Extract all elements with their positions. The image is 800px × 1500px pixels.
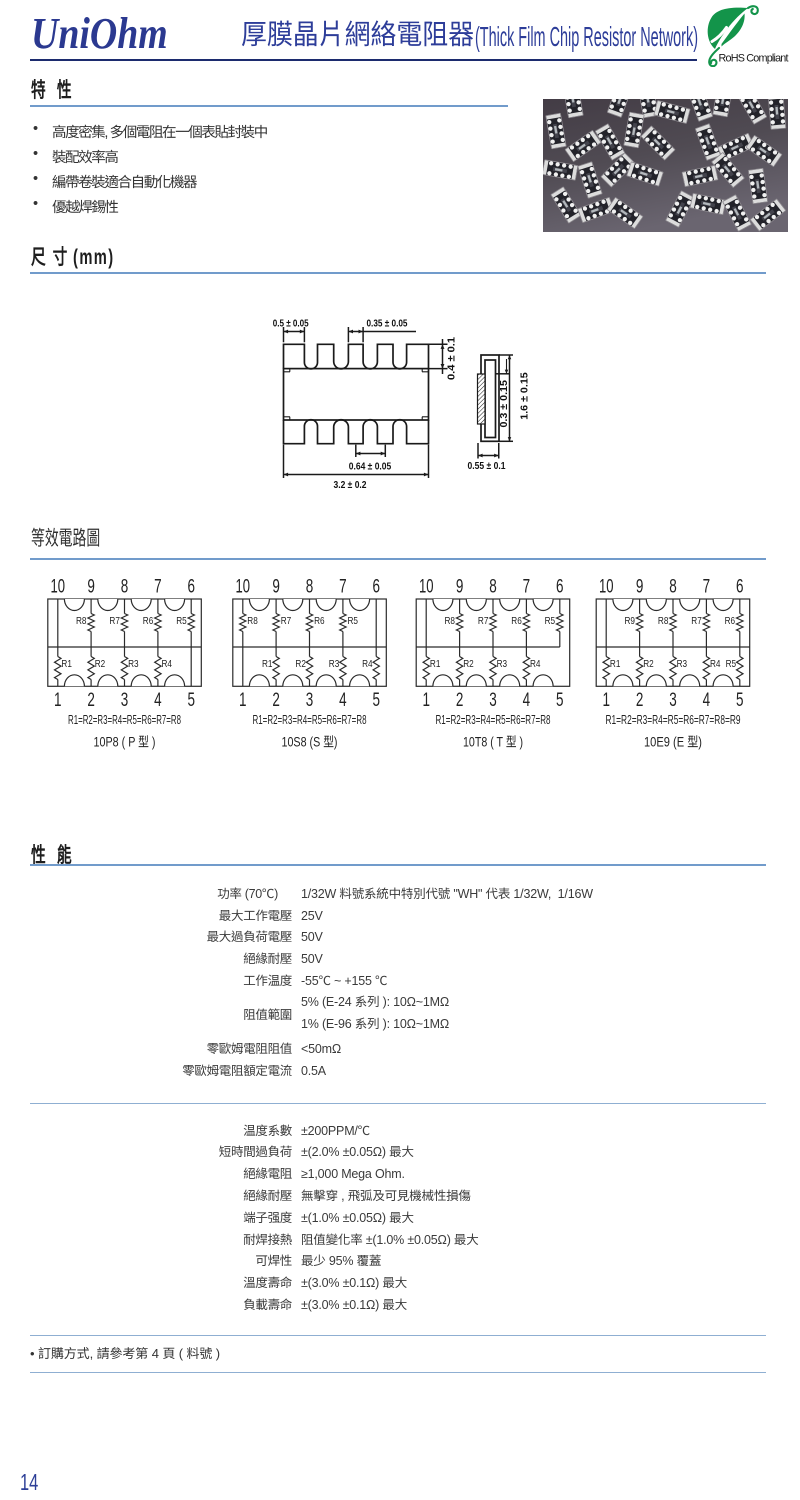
svg-text:10E9 (E 型): 10E9 (E 型)	[644, 735, 702, 750]
svg-text:10S8 (S 型): 10S8 (S 型)	[282, 735, 338, 750]
svg-text:3: 3	[306, 690, 314, 711]
svg-text:10: 10	[236, 576, 251, 597]
svg-text:10: 10	[599, 576, 614, 597]
svg-text:R1: R1	[262, 658, 273, 670]
svg-text:1: 1	[602, 690, 610, 711]
svg-text:R1: R1	[61, 658, 72, 670]
svg-text:R7: R7	[281, 615, 292, 627]
svg-text:4: 4	[154, 690, 162, 711]
svg-text:R2: R2	[643, 658, 654, 670]
svg-text:10: 10	[419, 576, 434, 597]
svg-text:3: 3	[121, 690, 129, 711]
svg-text:R5: R5	[726, 658, 737, 670]
svg-text:R4: R4	[710, 658, 721, 670]
svg-text:1: 1	[239, 690, 247, 711]
svg-text:R1: R1	[430, 658, 441, 670]
svg-text:7: 7	[154, 576, 162, 597]
svg-text:R1=R2=R3=R4=R5=R6=R7=R8: R1=R2=R3=R4=R5=R6=R7=R8	[253, 712, 367, 727]
svg-text:3: 3	[489, 690, 497, 711]
svg-text:R1=R2=R3=R4=R5=R6=R7=R8: R1=R2=R3=R4=R5=R6=R7=R8	[68, 712, 181, 727]
svg-text:6: 6	[372, 576, 380, 597]
svg-text:1: 1	[54, 690, 62, 711]
svg-text:5: 5	[372, 690, 380, 711]
svg-text:10: 10	[51, 576, 66, 597]
svg-text:R8: R8	[247, 615, 258, 627]
svg-text:R6: R6	[314, 615, 325, 627]
svg-text:R1=R2=R3=R4=R5=R6=R7=R8=R9: R1=R2=R3=R4=R5=R6=R7=R8=R9	[606, 712, 741, 727]
svg-text:2: 2	[636, 690, 644, 711]
svg-text:4: 4	[703, 690, 711, 711]
svg-text:R4: R4	[162, 658, 173, 670]
svg-text:R8: R8	[445, 615, 456, 627]
svg-text:10P8 ( P 型 ): 10P8 ( P 型 )	[94, 735, 156, 750]
svg-text:R6: R6	[511, 615, 522, 627]
svg-text:6: 6	[556, 576, 564, 597]
svg-text:R5: R5	[348, 615, 359, 627]
svg-text:R7: R7	[478, 615, 489, 627]
svg-text:R3: R3	[329, 658, 340, 670]
svg-text:R7: R7	[109, 615, 120, 627]
svg-text:7: 7	[703, 576, 711, 597]
svg-text:9: 9	[272, 576, 280, 597]
svg-text:9: 9	[87, 576, 95, 597]
svg-text:8: 8	[489, 576, 497, 597]
svg-text:0.5 ± 0.05: 0.5 ± 0.05	[273, 318, 309, 330]
svg-text:0.55 ± 0.1: 0.55 ± 0.1	[468, 460, 506, 472]
svg-text:R3: R3	[497, 658, 508, 670]
svg-text:4: 4	[339, 690, 347, 711]
svg-text:8: 8	[669, 576, 677, 597]
svg-text:R1: R1	[610, 658, 621, 670]
svg-text:6: 6	[187, 576, 195, 597]
svg-text:5: 5	[736, 690, 744, 711]
svg-text:1: 1	[422, 690, 430, 711]
svg-text:9: 9	[456, 576, 464, 597]
svg-text:2: 2	[87, 690, 95, 711]
svg-text:R2: R2	[295, 658, 306, 670]
svg-text:9: 9	[636, 576, 644, 597]
svg-text:3.2 ± 0.2: 3.2 ± 0.2	[334, 479, 367, 491]
svg-text:R1=R2=R3=R4=R5=R6=R7=R8: R1=R2=R3=R4=R5=R6=R7=R8	[436, 712, 551, 727]
svg-text:R5: R5	[176, 615, 187, 627]
svg-text:10T8 ( T 型 ): 10T8 ( T 型 )	[463, 735, 523, 750]
svg-text:8: 8	[306, 576, 314, 597]
svg-text:2: 2	[272, 690, 280, 711]
svg-text:0.4 ± 0.1: 0.4 ± 0.1	[446, 337, 458, 380]
svg-text:R4: R4	[530, 658, 541, 670]
svg-text:6: 6	[736, 576, 744, 597]
svg-text:R7: R7	[691, 615, 702, 627]
svg-text:R4: R4	[362, 658, 373, 670]
svg-text:4: 4	[523, 690, 531, 711]
svg-text:R5: R5	[545, 615, 556, 627]
svg-text:2: 2	[456, 690, 464, 711]
svg-text:7: 7	[523, 576, 531, 597]
svg-text:RoHS Compliant: RoHS Compliant	[719, 53, 789, 65]
svg-text:R3: R3	[677, 658, 688, 670]
svg-text:0.3 ± 0.15: 0.3 ± 0.15	[498, 380, 510, 428]
svg-text:0.35 ± 0.05: 0.35 ± 0.05	[367, 318, 408, 330]
svg-text:R8: R8	[76, 615, 87, 627]
svg-text:R2: R2	[95, 658, 106, 670]
svg-text:R6: R6	[143, 615, 154, 627]
svg-text:R9: R9	[625, 615, 636, 627]
svg-text:5: 5	[187, 690, 195, 711]
svg-text:R6: R6	[725, 615, 736, 627]
svg-text:3: 3	[669, 690, 677, 711]
svg-text:R2: R2	[463, 658, 474, 670]
svg-text:8: 8	[121, 576, 129, 597]
svg-text:7: 7	[339, 576, 347, 597]
svg-text:R8: R8	[658, 615, 669, 627]
svg-text:5: 5	[556, 690, 564, 711]
svg-text:1.6 ± 0.15: 1.6 ± 0.15	[519, 372, 531, 420]
svg-text:R3: R3	[128, 658, 139, 670]
svg-text:0.64 ± 0.05: 0.64 ± 0.05	[349, 461, 392, 473]
